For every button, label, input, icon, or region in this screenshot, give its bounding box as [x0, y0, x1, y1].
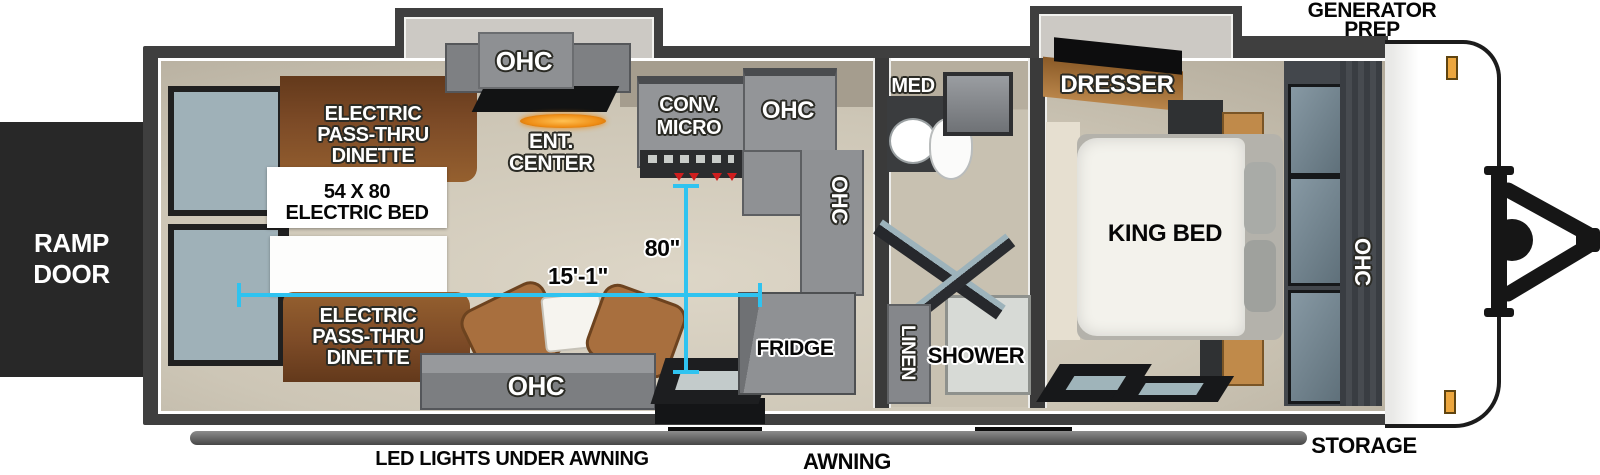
ohc-slide-label: OHC [478, 47, 570, 75]
fireplace-glow [520, 114, 606, 128]
storage-label: STORAGE [1305, 434, 1423, 458]
garage-ohc-bottom-label: OHC [420, 372, 652, 400]
ramp-door-label: RAMP DOOR [0, 228, 143, 290]
tv-slab [472, 86, 620, 112]
awning-label: AWNING [772, 450, 922, 474]
fridge-label: FRIDGE [738, 338, 852, 361]
length-dimension-cap-right [758, 283, 762, 307]
generator-prep-label: GENERATOR PREP [1302, 1, 1442, 39]
kitchen-ohc-upper-label: OHC [743, 98, 833, 124]
pillow-bottom [1244, 240, 1276, 312]
king-bed-label: KING BED [1065, 221, 1265, 247]
length-dimension-cap-left [237, 283, 241, 307]
awning-bar [190, 431, 1307, 445]
led-lights-label: LED LIGHTS UNDER AWNING [366, 449, 658, 471]
med-cabinet [943, 72, 1013, 136]
width-dimension-label: 80" [596, 236, 680, 261]
marker-light-bottom [1444, 390, 1456, 414]
burner-indicator-2 [689, 173, 699, 181]
length-dimension-label: 15'-1" [518, 264, 638, 289]
burner-indicator-1 [674, 173, 684, 181]
width-dimension-line [684, 186, 688, 372]
med-cabinet-label: MED [883, 76, 943, 98]
width-dimension-cap-top [673, 184, 699, 188]
bedroom-ohc-label: OHC [1342, 214, 1380, 310]
dinette-top-label: ELECTRIC PASS-THRU DINETTE [293, 104, 453, 167]
shower-label: SHOWER [920, 344, 1032, 368]
electric-bed-label: 54 X 80 ELECTRIC BED [267, 182, 447, 224]
burner-indicator-4 [727, 173, 737, 181]
electric-bed-platform-2 [270, 236, 447, 295]
burner-indicator-3 [712, 173, 722, 181]
dresser-label: DRESSER [1047, 72, 1187, 98]
ent-center-label: ENT. CENTER [471, 131, 631, 175]
wardrobe-glass-top [1288, 84, 1344, 176]
wardrobe-glass-bottom [1288, 290, 1344, 404]
conv-micro-label: CONV. MICRO [637, 94, 741, 140]
hitch-a-frame [1468, 150, 1600, 335]
floorplan-canvas: RAMP DOOR ELECTRIC PASS-THRU DINETTE 54 … [0, 0, 1600, 475]
width-dimension-cap-bottom [673, 370, 699, 374]
kitchen-ohc-corner-label: OHC [820, 152, 856, 248]
wardrobe-glass-middle [1288, 176, 1344, 286]
length-dimension-line [240, 293, 761, 297]
marker-light-top [1446, 56, 1458, 80]
bedroom-entry-mat-2 [1110, 376, 1234, 402]
